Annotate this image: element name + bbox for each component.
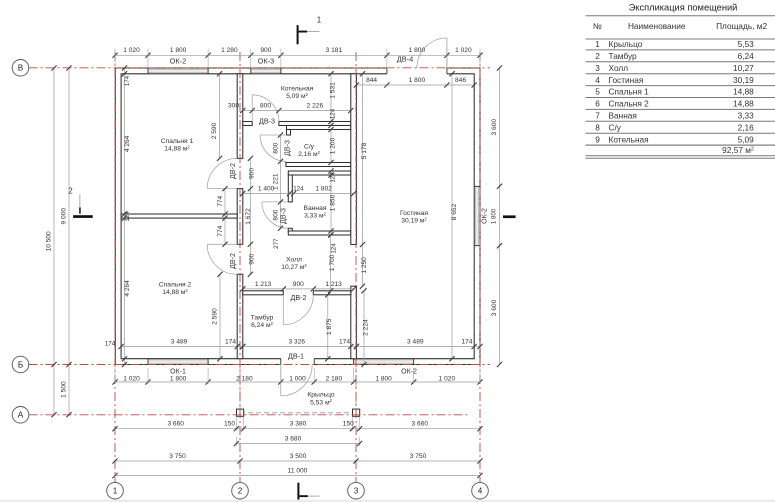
svg-text:2,16: 2,16 (738, 122, 755, 132)
svg-text:1 875: 1 875 (326, 318, 333, 335)
svg-text:1 800: 1 800 (375, 376, 392, 383)
svg-text:6,24 м2: 6,24 м2 (251, 321, 273, 329)
svg-text:1: 1 (113, 487, 118, 496)
svg-text:900: 900 (248, 253, 255, 264)
svg-text:В: В (18, 64, 24, 73)
svg-text:6,24: 6,24 (738, 51, 755, 61)
svg-text:174: 174 (105, 341, 116, 348)
svg-text:1 700: 1 700 (329, 254, 336, 271)
svg-text:3: 3 (354, 487, 359, 496)
svg-text:1 020: 1 020 (439, 376, 456, 383)
svg-text:3: 3 (595, 63, 600, 73)
svg-text:ДВ-3: ДВ-3 (283, 140, 292, 156)
svg-text:124: 124 (329, 108, 336, 119)
svg-text:ДВ-3: ДВ-3 (278, 208, 287, 224)
svg-text:124: 124 (331, 243, 338, 254)
svg-text:1 500: 1 500 (61, 381, 68, 398)
svg-text:3 489: 3 489 (407, 339, 424, 346)
svg-text:846: 846 (455, 77, 466, 84)
svg-text:124: 124 (329, 172, 336, 183)
svg-text:300: 300 (228, 103, 239, 110)
svg-text:800: 800 (272, 142, 279, 153)
svg-text:А: А (18, 411, 24, 420)
svg-text:1 020: 1 020 (123, 47, 140, 54)
svg-text:1 802: 1 802 (315, 186, 332, 193)
svg-text:3 680: 3 680 (285, 436, 302, 443)
svg-text:3 326: 3 326 (289, 339, 306, 346)
svg-text:124: 124 (124, 211, 131, 222)
svg-text:3 500: 3 500 (290, 453, 307, 460)
svg-text:174: 174 (339, 339, 350, 346)
svg-text:9 000: 9 000 (61, 208, 68, 225)
svg-text:8: 8 (595, 122, 600, 132)
svg-text:1: 1 (317, 15, 322, 24)
svg-text:774: 774 (217, 195, 224, 206)
svg-text:ОК-2: ОК-2 (170, 57, 187, 66)
svg-text:4 264: 4 264 (124, 135, 131, 152)
svg-text:6: 6 (595, 99, 600, 109)
svg-text:1 213: 1 213 (325, 281, 342, 288)
svg-text:ДВ-2: ДВ-2 (290, 293, 306, 302)
svg-text:№: № (593, 21, 602, 31)
svg-text:5,53 м2: 5,53 м2 (310, 398, 332, 406)
svg-text:900: 900 (260, 47, 271, 54)
svg-text:1 000: 1 000 (289, 376, 306, 383)
svg-text:1 020: 1 020 (123, 376, 140, 383)
svg-text:11 000: 11 000 (288, 468, 308, 475)
svg-text:844: 844 (366, 77, 377, 84)
svg-text:2 224: 2 224 (362, 319, 369, 336)
svg-text:3 660: 3 660 (412, 421, 429, 428)
svg-text:1 531: 1 531 (329, 82, 336, 99)
svg-text:3,33 м2: 3,33 м2 (304, 211, 326, 219)
svg-text:14,88: 14,88 (733, 87, 754, 97)
svg-text:92,57 м2: 92,57 м2 (722, 145, 754, 155)
svg-text:ДВ-2: ДВ-2 (228, 253, 237, 269)
svg-text:ОК-2: ОК-2 (481, 208, 488, 224)
svg-text:Котельная: Котельная (281, 85, 314, 92)
svg-text:ДВ-1: ДВ-1 (288, 352, 304, 361)
svg-text:174: 174 (124, 75, 131, 86)
svg-text:3 660: 3 660 (167, 421, 184, 428)
svg-text:1: 1 (595, 39, 600, 49)
svg-text:Экспликация помещений: Экспликация помещений (629, 3, 738, 13)
svg-text:8 652: 8 652 (451, 203, 458, 220)
svg-text:2: 2 (68, 187, 73, 196)
svg-text:ДВ-4: ДВ-4 (397, 55, 414, 64)
svg-text:1 800: 1 800 (170, 47, 187, 54)
svg-text:1 800: 1 800 (491, 208, 498, 224)
svg-text:150: 150 (343, 421, 354, 428)
svg-text:774: 774 (217, 225, 224, 236)
svg-text:Тамбур: Тамбур (609, 51, 638, 61)
svg-text:800: 800 (260, 103, 271, 110)
svg-text:3 600: 3 600 (491, 119, 498, 136)
svg-text:3 600: 3 600 (491, 299, 498, 316)
svg-text:2 180: 2 180 (326, 376, 343, 383)
svg-text:2 180: 2 180 (236, 376, 253, 383)
svg-text:30,19 м2: 30,19 м2 (401, 217, 427, 225)
svg-text:124: 124 (293, 186, 304, 193)
svg-text:14,88 м2: 14,88 м2 (162, 288, 188, 296)
svg-text:Гостиная: Гостиная (609, 75, 644, 85)
svg-text:14,88: 14,88 (733, 99, 754, 109)
svg-text:ДВ-3: ДВ-3 (259, 116, 275, 125)
svg-text:174: 174 (225, 339, 236, 346)
svg-text:Площадь, м2: Площадь, м2 (716, 21, 767, 31)
svg-text:С/у: С/у (304, 143, 315, 150)
svg-text:1 280: 1 280 (221, 47, 238, 54)
svg-text:900: 900 (293, 281, 304, 288)
svg-text:Холл: Холл (609, 63, 629, 73)
svg-text:ОК-2: ОК-2 (401, 368, 417, 375)
svg-text:5,09 м2: 5,09 м2 (286, 92, 308, 100)
svg-text:2,16 м2: 2,16 м2 (298, 150, 320, 158)
svg-text:1 800: 1 800 (409, 77, 426, 84)
svg-text:Котельная: Котельная (609, 134, 649, 144)
svg-text:3 750: 3 750 (169, 453, 186, 460)
svg-text:1 800: 1 800 (170, 376, 187, 383)
svg-text:С/у: С/у (609, 122, 622, 132)
svg-text:1 213: 1 213 (255, 281, 272, 288)
svg-text:1 850: 1 850 (329, 194, 336, 211)
svg-text:30,19: 30,19 (733, 75, 754, 85)
svg-text:9: 9 (595, 134, 600, 144)
svg-text:Спальня 1: Спальня 1 (609, 87, 650, 97)
svg-text:3 750: 3 750 (410, 453, 427, 460)
svg-text:1 800: 1 800 (409, 47, 426, 54)
svg-text:3 380: 3 380 (290, 421, 307, 428)
svg-text:2: 2 (595, 51, 600, 61)
svg-text:Крыльцо: Крыльцо (609, 39, 643, 49)
svg-text:1 250: 1 250 (361, 257, 368, 274)
svg-text:2 226: 2 226 (307, 103, 324, 110)
svg-text:3 181: 3 181 (326, 47, 343, 54)
svg-text:14,88 м2: 14,88 м2 (164, 144, 190, 152)
svg-text:4: 4 (478, 487, 483, 496)
svg-text:Б: Б (18, 360, 23, 369)
svg-text:7: 7 (595, 111, 600, 121)
svg-text:1 672: 1 672 (245, 208, 252, 225)
svg-text:3 489: 3 489 (171, 339, 188, 346)
svg-text:5,09: 5,09 (738, 134, 755, 144)
svg-text:1 020: 1 020 (455, 47, 472, 54)
svg-text:4 264: 4 264 (124, 280, 131, 297)
svg-text:2 590: 2 590 (211, 122, 218, 139)
svg-text:10 500: 10 500 (46, 231, 53, 252)
svg-text:4: 4 (595, 75, 600, 85)
svg-text:174: 174 (461, 339, 472, 346)
svg-text:Наименование: Наименование (628, 21, 686, 31)
svg-text:2: 2 (238, 487, 243, 496)
svg-text:ДВ-2: ДВ-2 (228, 163, 237, 179)
svg-text:ОК-3: ОК-3 (258, 57, 275, 66)
svg-text:900: 900 (248, 168, 255, 179)
svg-text:5,53: 5,53 (738, 39, 755, 49)
svg-text:3,33: 3,33 (738, 111, 755, 121)
svg-text:Спальня 2: Спальня 2 (609, 99, 650, 109)
svg-text:1 200: 1 200 (329, 137, 336, 154)
svg-text:Холл: Холл (286, 256, 302, 263)
svg-text:10,27: 10,27 (733, 63, 754, 73)
svg-text:277: 277 (273, 238, 280, 249)
svg-text:5: 5 (595, 87, 600, 97)
svg-text:5 178: 5 178 (361, 142, 368, 159)
svg-text:2 590: 2 590 (212, 308, 219, 325)
svg-text:Ванная: Ванная (609, 111, 637, 121)
svg-text:1 221: 1 221 (272, 173, 279, 190)
svg-text:150: 150 (224, 421, 235, 428)
svg-text:10,27 м2: 10,27 м2 (281, 263, 307, 271)
svg-text:ОК-1: ОК-1 (170, 368, 186, 375)
